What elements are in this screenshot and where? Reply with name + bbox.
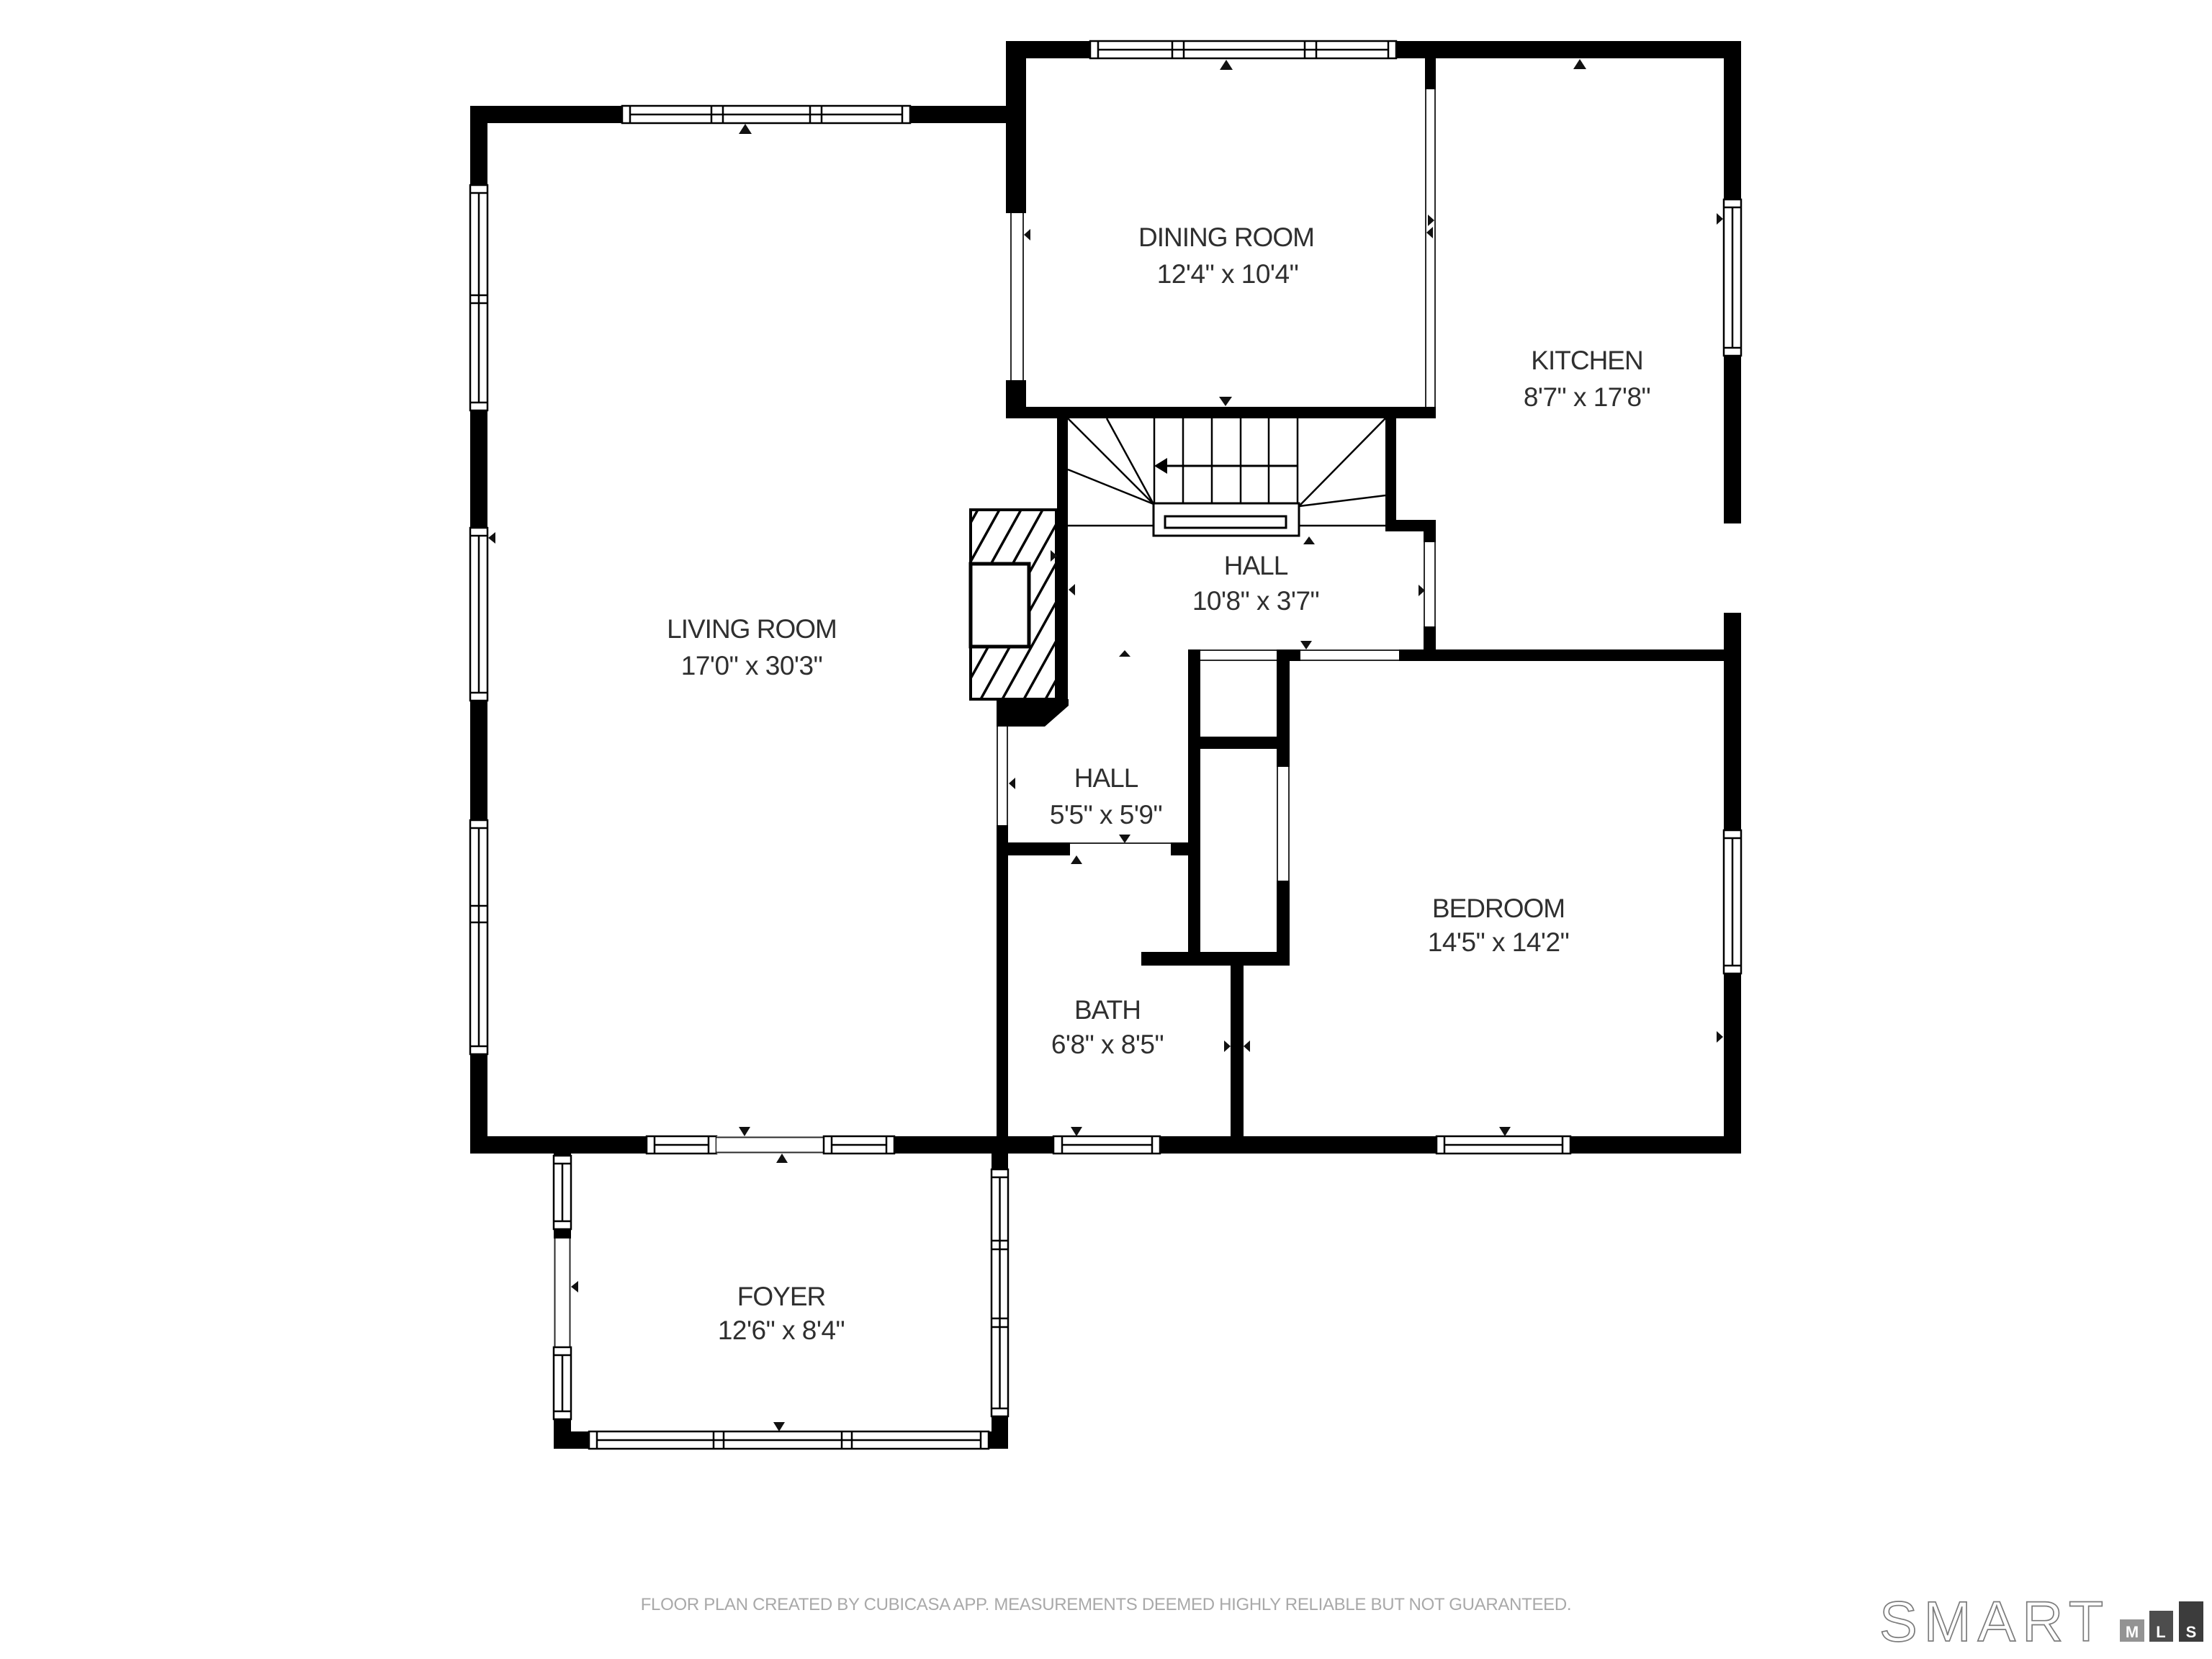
svg-text:BEDROOM: BEDROOM <box>1432 894 1565 923</box>
svg-text:L: L <box>2156 1623 2165 1641</box>
svg-text:6'8" x 8'5": 6'8" x 8'5" <box>1051 1030 1164 1059</box>
svg-text:HALL: HALL <box>1074 763 1138 793</box>
svg-text:10'8" x 3'7": 10'8" x 3'7" <box>1192 586 1319 616</box>
svg-text:FOYER: FOYER <box>737 1282 825 1311</box>
svg-text:LIVING ROOM: LIVING ROOM <box>667 614 837 644</box>
svg-text:5'5" x 5'9": 5'5" x 5'9" <box>1050 800 1162 829</box>
svg-text:M: M <box>2126 1623 2139 1641</box>
svg-text:12'6" x 8'4": 12'6" x 8'4" <box>718 1316 845 1345</box>
svg-text:14'5" x 14'2": 14'5" x 14'2" <box>1428 927 1569 957</box>
svg-text:KITCHEN: KITCHEN <box>1531 346 1642 375</box>
svg-text:HALL: HALL <box>1224 551 1288 580</box>
svg-text:SMART: SMART <box>1879 1589 2110 1653</box>
svg-text:12'4" x 10'4": 12'4" x 10'4" <box>1157 259 1298 289</box>
svg-text:17'0" x 30'3": 17'0" x 30'3" <box>681 651 822 680</box>
svg-text:DINING ROOM: DINING ROOM <box>1138 222 1314 252</box>
svg-text:S: S <box>2186 1623 2197 1641</box>
svg-text:BATH: BATH <box>1074 995 1141 1025</box>
svg-text:FLOOR PLAN CREATED BY CUBICASA: FLOOR PLAN CREATED BY CUBICASA APP. MEAS… <box>641 1595 1572 1614</box>
svg-text:8'7" x 17'8": 8'7" x 17'8" <box>1524 382 1650 412</box>
